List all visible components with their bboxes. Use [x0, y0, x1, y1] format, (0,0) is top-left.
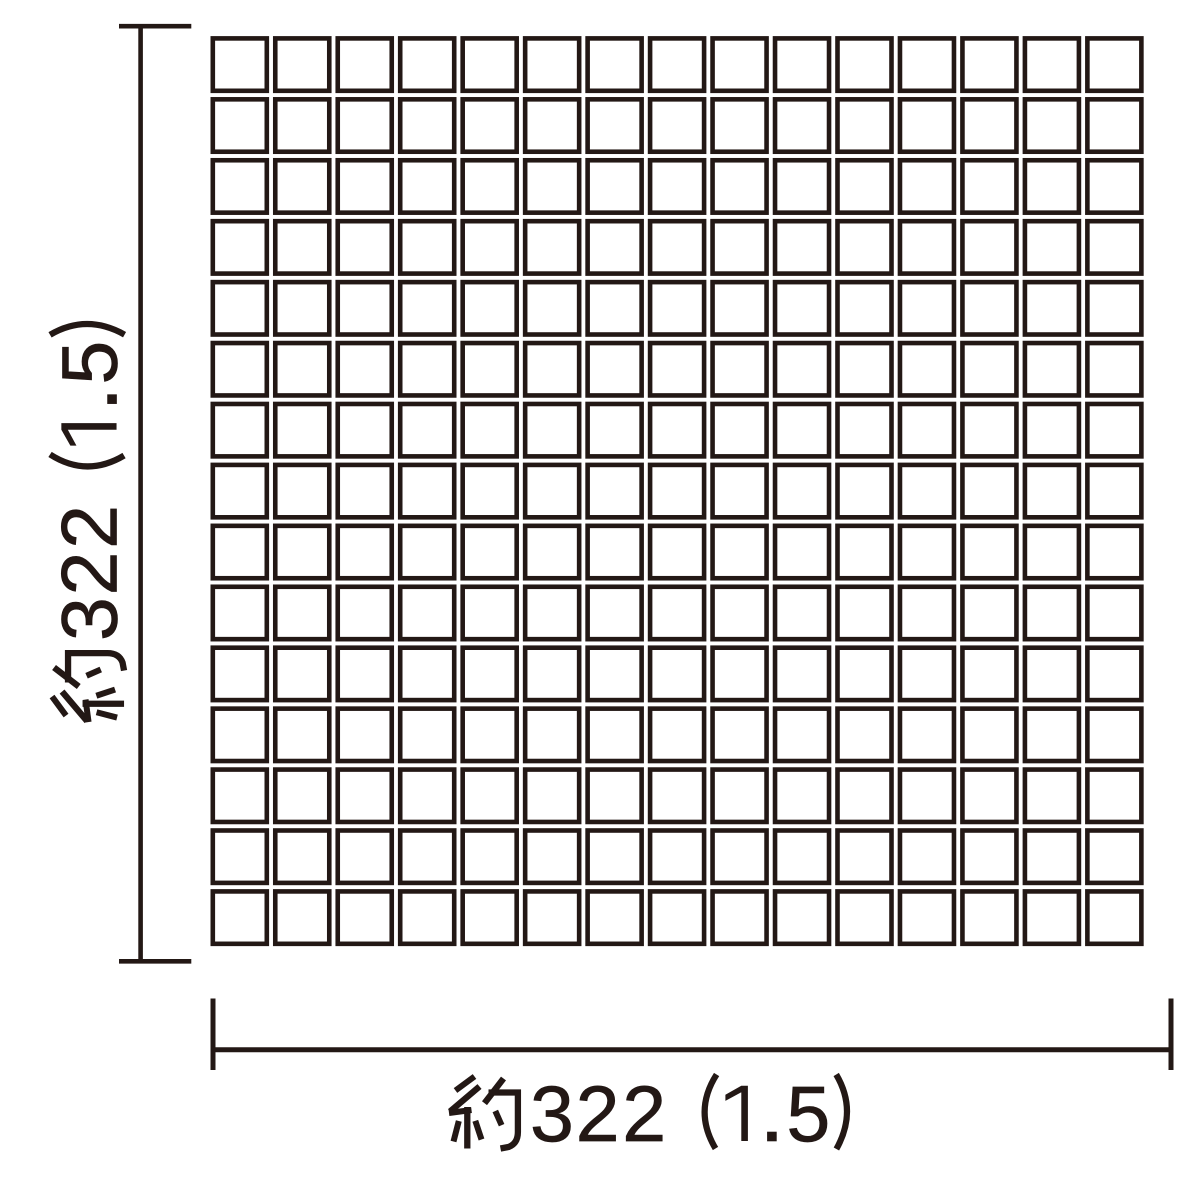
svg-text:5: 5 [786, 1069, 830, 1158]
svg-text:5: 5 [45, 341, 134, 385]
svg-text:3: 3 [530, 1069, 574, 1158]
svg-text:2: 2 [45, 552, 134, 596]
svg-text:3: 3 [45, 597, 134, 641]
svg-text:2: 2 [622, 1069, 666, 1158]
svg-text:2: 2 [576, 1069, 620, 1158]
svg-text:2: 2 [45, 505, 134, 549]
